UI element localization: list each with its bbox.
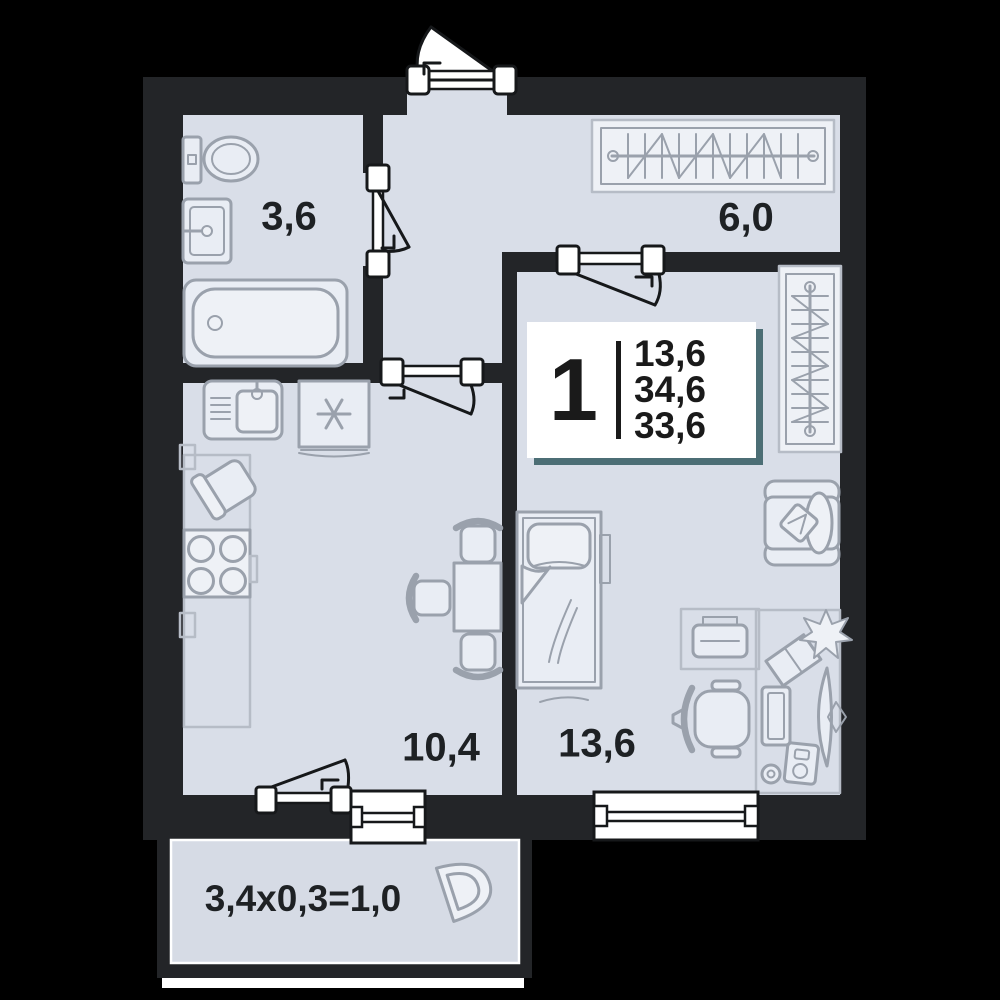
floor-plan: 3,6 6,0 10,4 13,6 3,4x0,3=1,0 1 13,6 34,… xyxy=(0,0,1000,1000)
bathtub-icon xyxy=(184,280,347,366)
fridge-icon xyxy=(299,381,369,457)
mouse-icon xyxy=(762,765,780,783)
hallway-area-label: 6,0 xyxy=(718,196,774,241)
area-reduced: 33,6 xyxy=(634,408,706,444)
bedroom-window xyxy=(594,792,758,840)
apartment-info-badge: 1 13,6 34,6 33,6 xyxy=(527,322,756,458)
toilet-icon xyxy=(183,137,258,183)
stove-icon xyxy=(184,530,257,597)
bathroom-area-label: 3,6 xyxy=(261,195,317,240)
area-living: 13,6 xyxy=(634,336,706,372)
bedroom-closet-icon xyxy=(779,266,841,452)
balcony-area-label: 3,4x0,3=1,0 xyxy=(205,878,402,920)
area-total: 34,6 xyxy=(634,372,706,408)
kitchen-window xyxy=(351,791,425,843)
rooms-count: 1 xyxy=(527,346,598,434)
bed-icon xyxy=(517,512,610,702)
badge-areas: 13,6 34,6 33,6 xyxy=(634,336,706,444)
floor-plan-drawing xyxy=(0,0,1000,1000)
kitchen-living-area-label: 10,4 xyxy=(402,726,480,771)
kitchen-sink-icon xyxy=(204,381,282,439)
badge-divider xyxy=(616,341,621,439)
washbasin-icon xyxy=(183,199,231,263)
hallway-closet-icon xyxy=(592,120,834,192)
plan-bottom-edge xyxy=(162,978,524,988)
pc-speaker-icon xyxy=(784,743,819,785)
bedroom-area-label: 13,6 xyxy=(558,722,636,767)
keyboard-icon xyxy=(762,687,790,745)
armchair-icon xyxy=(765,481,839,565)
entrance-door xyxy=(407,27,516,94)
